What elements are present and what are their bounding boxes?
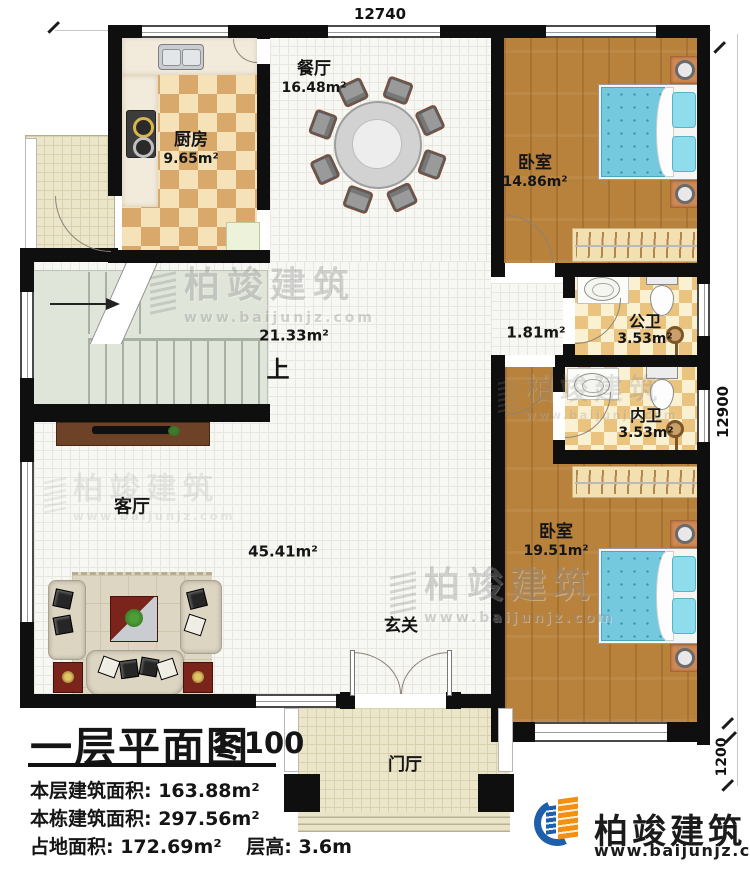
dimension-line-right <box>737 34 738 786</box>
nightstand <box>670 520 700 548</box>
wall <box>228 25 328 38</box>
room-label-living: 客厅 <box>114 498 150 519</box>
plant-icon <box>168 426 180 436</box>
kitchen-sink-icon <box>158 44 204 70</box>
closet <box>572 466 700 498</box>
stair-arrow-head <box>106 298 120 310</box>
stat-floor-area: 本层建筑面积: 163.88m² <box>30 776 260 803</box>
plant-icon <box>62 671 74 683</box>
dimension-foyer-label: 1200 <box>714 738 730 777</box>
dimension-tick <box>721 779 733 791</box>
tv-icon <box>92 426 172 434</box>
entry-door-leaf <box>350 650 355 696</box>
title-underline <box>28 763 276 767</box>
dimension-right-label: 12900 <box>714 386 732 438</box>
coffee-table <box>110 596 158 642</box>
wall <box>491 263 505 277</box>
stair-direction-arrow <box>50 303 108 305</box>
nightstand <box>670 180 700 208</box>
sofa-pillow <box>53 615 74 636</box>
wall <box>563 344 575 355</box>
room-label-dining: 餐厅 16.48m² <box>281 60 346 96</box>
room-label-foyer: 门厅 <box>388 756 422 776</box>
wall <box>555 263 697 277</box>
room-label-inner-bath: 内卫 3.53m² <box>618 407 673 441</box>
dining-table-center <box>352 119 402 169</box>
bed-pillow <box>672 556 696 592</box>
wall <box>26 404 270 422</box>
floor-plan-canvas: 12740 12900 1200 <box>0 0 750 870</box>
foyer-side-strip <box>498 708 513 772</box>
area-label-hall: 21.33m² <box>259 327 329 344</box>
window <box>328 25 440 38</box>
side-table <box>183 662 213 693</box>
sink-basin <box>162 49 181 66</box>
bed-pillow <box>672 598 696 634</box>
plant-icon <box>125 609 143 627</box>
dimension-top-label: 12740 <box>354 5 406 23</box>
wall <box>491 25 504 263</box>
foyer-column <box>478 774 514 812</box>
wall <box>555 355 697 367</box>
window <box>20 462 34 622</box>
wall <box>491 355 505 727</box>
brand-url: www.baijunjz.com <box>594 841 750 860</box>
plan-scale: 1:100 <box>212 726 304 760</box>
kitchen-stove-icon <box>126 110 156 158</box>
logo-tower-blue <box>546 805 556 834</box>
stove-burner <box>133 137 154 158</box>
wall <box>108 250 270 263</box>
area-label-living: 45.41m² <box>248 543 318 560</box>
wall <box>563 263 575 298</box>
plant-icon <box>192 671 204 683</box>
area-label-corridor: 1.81m² <box>506 324 565 341</box>
wall <box>257 25 270 39</box>
entry-door-leaf <box>447 650 452 696</box>
side-table <box>53 662 83 693</box>
stat-footprint: 占地面积: 172.69m² 层高: 3.6m <box>30 832 352 859</box>
window <box>256 694 336 708</box>
corridor-floor <box>491 283 563 355</box>
foyer-steps <box>298 812 510 832</box>
wall <box>553 367 565 392</box>
label-stairs-up: 上 <box>267 357 290 383</box>
logo-tower-orange <box>558 797 578 840</box>
room-label-entry: 玄关 <box>384 617 418 637</box>
sink-basin <box>182 49 201 66</box>
room-label-bedroom-bottom: 卧室 19.51m² <box>523 523 588 559</box>
bed-pillow <box>672 92 696 128</box>
nightstand <box>670 56 700 84</box>
room-label-kitchen: 厨房 9.65m² <box>163 131 218 167</box>
foyer-column <box>284 774 320 812</box>
stat-storey-height: 层高: 3.6m <box>246 836 352 858</box>
window <box>535 722 667 742</box>
stair-lower-flight <box>88 338 262 407</box>
window <box>546 25 656 38</box>
nightstand <box>670 644 700 672</box>
stove-burner <box>133 117 154 138</box>
toilet-icon <box>646 366 678 379</box>
dimension-tick <box>713 41 725 53</box>
wall <box>553 450 710 464</box>
wall <box>20 694 256 708</box>
sofa-pillow <box>119 659 139 679</box>
wall <box>257 64 270 210</box>
brand-logo-icon <box>534 794 588 854</box>
room-label-public-bath: 公卫 3.53m² <box>617 313 672 347</box>
window <box>697 390 710 442</box>
stat-building-area: 本栋建筑面积: 297.56m² <box>30 804 260 831</box>
wardrobe <box>572 228 700 262</box>
dimension-tick <box>721 717 733 729</box>
wall <box>108 25 122 196</box>
window <box>697 284 710 336</box>
window <box>142 25 228 38</box>
sofa-pillow <box>52 588 73 609</box>
dimension-tick <box>47 21 59 33</box>
bed-pillow <box>672 136 696 172</box>
porch-step <box>25 138 37 252</box>
wall <box>697 25 710 745</box>
window <box>20 292 34 378</box>
room-label-bedroom-top: 卧室 14.86m² <box>502 154 567 190</box>
